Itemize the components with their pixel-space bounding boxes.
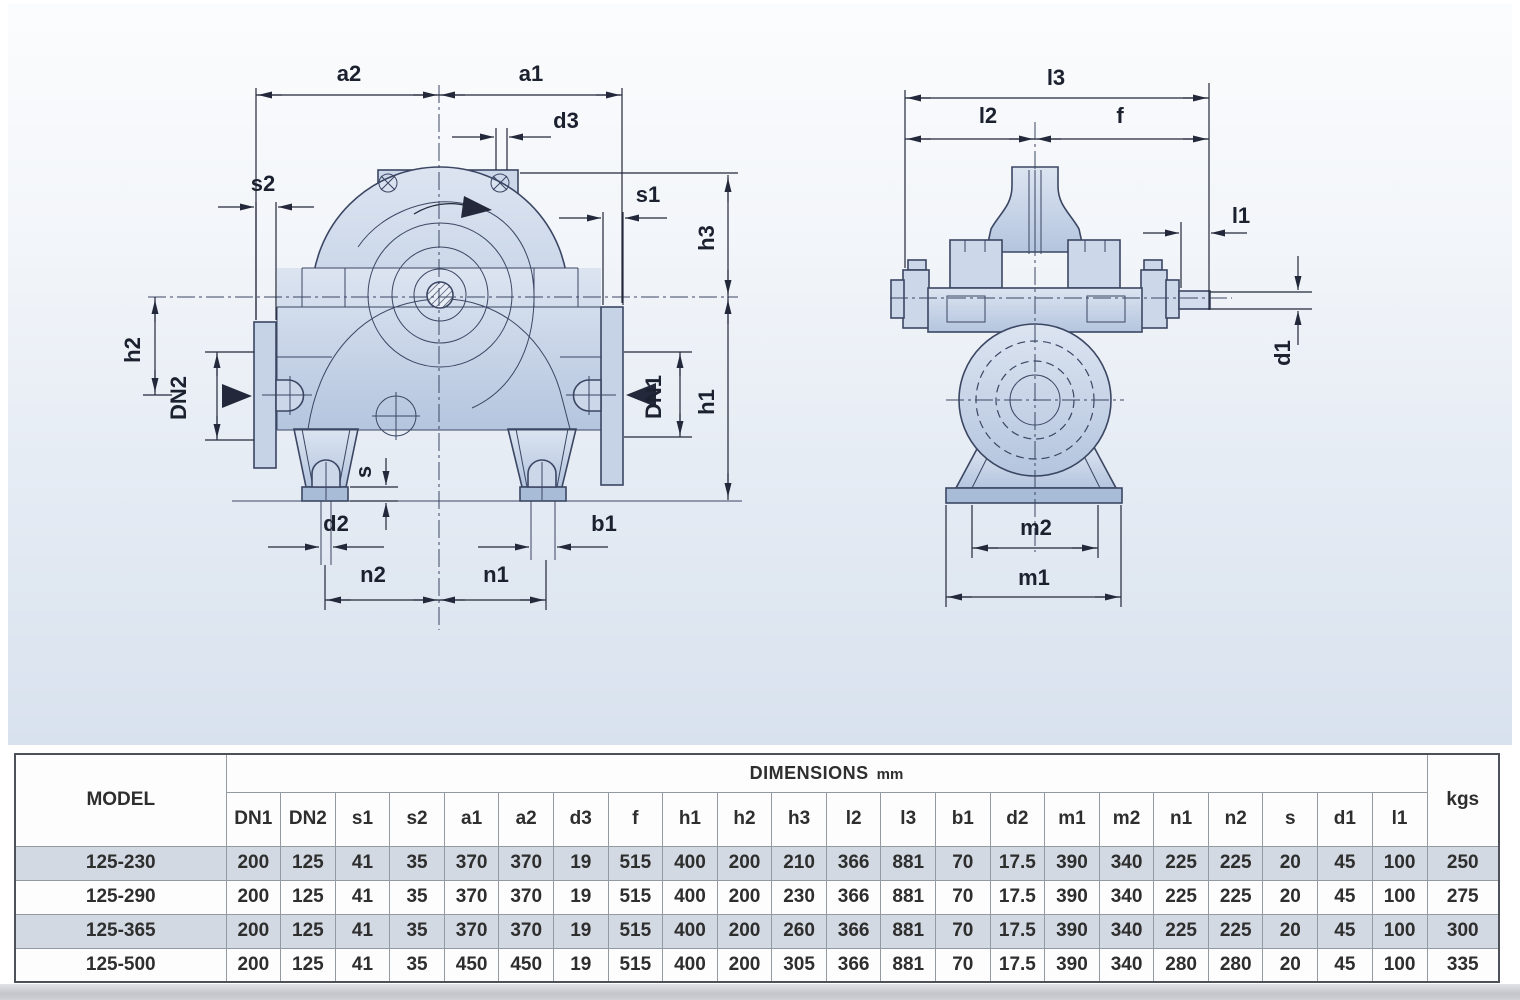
cell-s1: 41 — [335, 846, 390, 880]
cell-s2: 35 — [390, 846, 445, 880]
col-header-d2: d2 — [990, 792, 1045, 846]
cell-s: 20 — [1263, 880, 1318, 914]
col-header-s1: s1 — [335, 792, 390, 846]
cell-d3: 19 — [553, 846, 608, 880]
cell-m2: 340 — [1099, 846, 1154, 880]
dim-label-s1: s1 — [636, 182, 660, 207]
cell-s1: 41 — [335, 880, 390, 914]
scan-edge-shadow — [0, 984, 1520, 1000]
cell-n1: 225 — [1154, 846, 1209, 880]
col-header-h3: h3 — [772, 792, 827, 846]
cell-m2: 340 — [1099, 948, 1154, 982]
cell-l1: 100 — [1372, 880, 1427, 914]
dn2-flow-arrow-icon — [222, 384, 252, 408]
cell-h2: 200 — [717, 948, 772, 982]
dim-label-l1: l1 — [1232, 203, 1250, 228]
cell-f: 515 — [608, 846, 663, 880]
dim-label-a1: a1 — [519, 61, 543, 86]
col-header-a2: a2 — [499, 792, 554, 846]
cell-n1: 225 — [1154, 880, 1209, 914]
col-header-f: f — [608, 792, 663, 846]
dim-label-a2: a2 — [337, 61, 361, 86]
shaft-end — [1179, 291, 1210, 309]
cell-d3: 19 — [553, 948, 608, 982]
cell-d3: 19 — [553, 914, 608, 948]
cell-a2: 450 — [499, 948, 554, 982]
table-row-125-500: 125-500200125413545045019515400200305366… — [15, 948, 1499, 982]
cell-n2: 225 — [1208, 846, 1263, 880]
col-header-DN2: DN2 — [281, 792, 336, 846]
cell-a1: 370 — [444, 914, 499, 948]
cell-a2: 370 — [499, 914, 554, 948]
right-bearing-cap — [1141, 270, 1167, 328]
cell-h3: 210 — [772, 846, 827, 880]
cell-h2: 200 — [717, 846, 772, 880]
cell-d1: 45 — [1318, 948, 1373, 982]
cell-l3: 881 — [881, 914, 936, 948]
cell-h1: 400 — [663, 880, 718, 914]
cell-l1: 100 — [1372, 846, 1427, 880]
dim-label-s2: s2 — [251, 171, 275, 196]
cell-h3: 260 — [772, 914, 827, 948]
base-pad — [946, 488, 1122, 503]
col-header-d3: d3 — [553, 792, 608, 846]
cell-m1: 390 — [1045, 914, 1100, 948]
cell-d2: 17.5 — [990, 948, 1045, 982]
dim-label-n2: n2 — [360, 562, 386, 587]
cell-DN2: 125 — [281, 948, 336, 982]
cell-f: 515 — [608, 914, 663, 948]
discharge-flange-dn1 — [601, 307, 623, 485]
cell-l3: 881 — [881, 846, 936, 880]
cell-s2: 35 — [390, 914, 445, 948]
cell-h1: 400 — [663, 846, 718, 880]
cell-b1: 70 — [936, 948, 991, 982]
cell-f: 515 — [608, 880, 663, 914]
cell-DN1: 200 — [226, 914, 281, 948]
dim-label-d3: d3 — [553, 108, 579, 133]
model-cell: 125-500 — [15, 948, 226, 982]
cell-h1: 400 — [663, 948, 718, 982]
cell-DN1: 200 — [226, 846, 281, 880]
cell-h1: 400 — [663, 914, 718, 948]
cell-l3: 881 — [881, 948, 936, 982]
side-view-dimensions — [905, 83, 1312, 607]
cell-kgs: 300 — [1427, 914, 1499, 948]
left-foot-pad — [302, 487, 348, 501]
cell-DN1: 200 — [226, 880, 281, 914]
dim-label-h2: h2 — [120, 337, 145, 363]
cell-l2: 366 — [826, 914, 881, 948]
table-row-125-230: 125-230200125413537037019515400200210366… — [15, 846, 1499, 880]
cell-DN2: 125 — [281, 846, 336, 880]
dim-label-d1: d1 — [1270, 340, 1295, 366]
dim-label-h3: h3 — [694, 225, 719, 251]
cell-m1: 390 — [1045, 846, 1100, 880]
cell-l3: 881 — [881, 880, 936, 914]
col-header-l1: l1 — [1372, 792, 1427, 846]
cell-kgs: 335 — [1427, 948, 1499, 982]
cell-l1: 100 — [1372, 948, 1427, 982]
cell-kgs: 275 — [1427, 880, 1499, 914]
col-header-a1: a1 — [444, 792, 499, 846]
col-header-s: s — [1263, 792, 1318, 846]
table-row-125-365: 125-365200125413537037019515400200260366… — [15, 914, 1499, 948]
cell-s: 20 — [1263, 914, 1318, 948]
left-bearing-cap — [903, 270, 929, 328]
cell-d1: 45 — [1318, 914, 1373, 948]
cell-s2: 35 — [390, 948, 445, 982]
cell-a2: 370 — [499, 846, 554, 880]
pump-front-view — [148, 85, 742, 630]
cell-b1: 70 — [936, 880, 991, 914]
cell-n2: 280 — [1208, 948, 1263, 982]
dim-label-b1: b1 — [591, 511, 617, 536]
dimensions-table-section: MODEL DIMENSIONSmm kgs DN1DN2s1s2a1a2d3f… — [14, 753, 1500, 983]
col-header-h2: h2 — [717, 792, 772, 846]
dim-label-h1: h1 — [694, 389, 719, 415]
weight-column-header: kgs — [1427, 754, 1499, 846]
cell-d2: 17.5 — [990, 846, 1045, 880]
cell-l2: 366 — [826, 846, 881, 880]
col-header-d1: d1 — [1318, 792, 1373, 846]
cell-DN1: 200 — [226, 948, 281, 982]
pump-dimension-drawing: a2a1d3s2s1h3h2DN2DN1h1sd2b1n2n1l3l2fl1d1… — [8, 4, 1512, 745]
cell-n2: 225 — [1208, 914, 1263, 948]
dim-label-m2: m2 — [1020, 515, 1052, 540]
dim-label-d2: d2 — [323, 511, 349, 536]
col-header-n1: n1 — [1154, 792, 1209, 846]
cell-h3: 305 — [772, 948, 827, 982]
cell-h2: 200 — [717, 914, 772, 948]
cell-d2: 17.5 — [990, 914, 1045, 948]
cell-h2: 200 — [717, 880, 772, 914]
cell-h3: 230 — [772, 880, 827, 914]
cell-b1: 70 — [936, 914, 991, 948]
shaft-center — [427, 282, 453, 308]
dim-label-s: s — [351, 466, 376, 478]
cell-d1: 45 — [1318, 880, 1373, 914]
cell-s: 20 — [1263, 948, 1318, 982]
cell-n1: 280 — [1154, 948, 1209, 982]
cell-m1: 390 — [1045, 880, 1100, 914]
dimensions-unit-label: mm — [877, 766, 904, 783]
cell-l2: 366 — [826, 948, 881, 982]
model-cell: 125-230 — [15, 846, 226, 880]
cell-a1: 450 — [444, 948, 499, 982]
cell-s1: 41 — [335, 948, 390, 982]
cell-d3: 19 — [553, 880, 608, 914]
pump-side-view — [890, 122, 1232, 552]
cell-b1: 70 — [936, 846, 991, 880]
dim-label-DN1: DN1 — [641, 375, 666, 419]
cell-l2: 366 — [826, 880, 881, 914]
dimensions-header-label: DIMENSIONS — [750, 763, 869, 783]
cell-m2: 340 — [1099, 880, 1154, 914]
cell-a1: 370 — [444, 880, 499, 914]
col-header-h1: h1 — [663, 792, 718, 846]
cell-f: 515 — [608, 948, 663, 982]
cell-n1: 225 — [1154, 914, 1209, 948]
cell-a1: 370 — [444, 846, 499, 880]
right-foot-pad — [520, 487, 566, 501]
cell-DN2: 125 — [281, 914, 336, 948]
cell-n2: 225 — [1208, 880, 1263, 914]
table-row-125-290: 125-290200125413537037019515400200230366… — [15, 880, 1499, 914]
col-header-m2: m2 — [1099, 792, 1154, 846]
cell-kgs: 250 — [1427, 846, 1499, 880]
col-header-l2: l2 — [826, 792, 881, 846]
cell-a2: 370 — [499, 880, 554, 914]
cell-l1: 100 — [1372, 914, 1427, 948]
col-header-DN1: DN1 — [226, 792, 281, 846]
dim-label-m1: m1 — [1018, 565, 1050, 590]
col-header-b1: b1 — [936, 792, 991, 846]
dim-label-DN2: DN2 — [166, 376, 191, 420]
dim-label-l2: l2 — [979, 103, 997, 128]
dimensions-header: DIMENSIONSmm — [226, 754, 1427, 792]
col-header-l3: l3 — [881, 792, 936, 846]
dim-label-f: f — [1116, 103, 1124, 128]
model-column-header: MODEL — [15, 754, 226, 846]
cell-d1: 45 — [1318, 846, 1373, 880]
col-header-n2: n2 — [1208, 792, 1263, 846]
cell-m1: 390 — [1045, 948, 1100, 982]
dim-label-n1: n1 — [483, 562, 509, 587]
model-cell: 125-290 — [15, 880, 226, 914]
cell-s1: 41 — [335, 914, 390, 948]
cell-s2: 35 — [390, 880, 445, 914]
col-header-m1: m1 — [1045, 792, 1100, 846]
dimensions-table: MODEL DIMENSIONSmm kgs DN1DN2s1s2a1a2d3f… — [14, 753, 1500, 983]
cell-d2: 17.5 — [990, 880, 1045, 914]
cell-m2: 340 — [1099, 914, 1154, 948]
col-header-s2: s2 — [390, 792, 445, 846]
model-cell: 125-365 — [15, 914, 226, 948]
cell-DN2: 125 — [281, 880, 336, 914]
dim-label-l3: l3 — [1047, 65, 1065, 90]
cell-s: 20 — [1263, 846, 1318, 880]
